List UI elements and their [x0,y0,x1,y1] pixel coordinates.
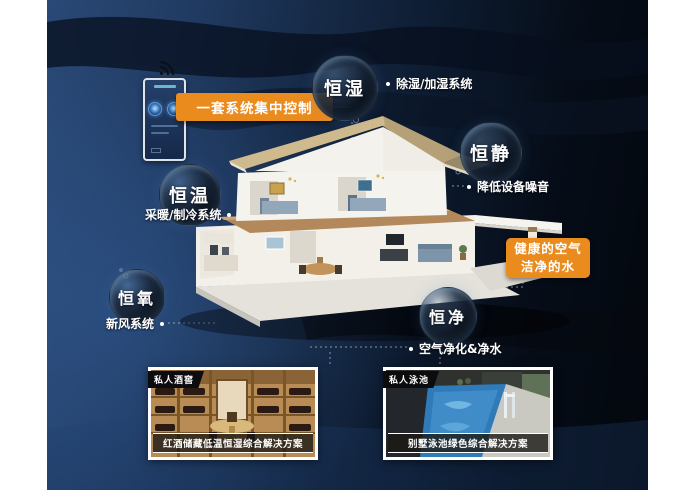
bullet-dot [386,82,390,86]
bubble-label: 恒湿 [324,75,366,101]
bubble-constant-purity: 恒净 [419,287,477,345]
bubble-label: 恒氧 [118,285,156,309]
bullet-dot [160,322,164,326]
bubble-constant-humidity: 恒湿 [312,55,378,121]
note-text: 除湿/加湿系统 [396,75,472,92]
wine-cellar-card: 私人酒窖 红酒储藏低温恒湿综合解决方案 [148,367,318,460]
bullet-dot [409,347,413,351]
note-text: 空气净化&净水 [419,340,501,357]
bubble-constant-quiet: 恒静 [460,122,522,184]
wine-cellar-tag: 私人酒窖 [148,371,204,388]
note-heating-cooling: 采暖/制冷系统 [145,206,231,223]
bullet-dot [227,213,231,217]
wifi-icon [160,61,178,75]
panel-knob [148,102,162,116]
pool-caption: 别墅泳池绿色综合解决方案 [388,433,548,453]
central-control-label: 一套系统集中控制 [176,93,333,121]
bubble-label: 恒温 [169,182,211,208]
note-text: 降低设备噪音 [477,178,549,195]
note-text: 新风系统 [106,315,154,332]
note-air-water-purify: 空气净化&净水 [409,340,501,357]
note-text: 采暖/制冷系统 [145,206,221,223]
central-control-text: 一套系统集中控制 [197,97,313,117]
pool-card: 私人泳池 别墅泳池绿色综合解决方案 [383,367,553,460]
note-dehumidify-system: 除湿/加湿系统 [386,75,472,92]
callout-line2: 洁净的水 [514,258,582,276]
bubble-label: 恒静 [470,140,512,166]
note-fresh-air: 新风系统 [106,315,164,332]
bubble-label: 恒净 [429,304,467,328]
poster-panel: 一套系统集中控制 健康的空气 洁净的水 恒湿 恒静 恒温 恒氧 恒净 除湿/加湿… [47,0,648,490]
callout-line1: 健康的空气 [514,240,582,258]
pool-tag: 私人泳池 [383,371,439,388]
wine-cellar-caption: 红酒储藏低温恒湿综合解决方案 [153,433,313,453]
note-noise-reduction: 降低设备噪音 [467,178,549,195]
poster: 一套系统集中控制 健康的空气 洁净的水 恒湿 恒静 恒温 恒氧 恒净 除湿/加湿… [0,0,700,497]
healthy-air-callout: 健康的空气 洁净的水 [506,238,590,278]
bullet-dot [467,185,471,189]
